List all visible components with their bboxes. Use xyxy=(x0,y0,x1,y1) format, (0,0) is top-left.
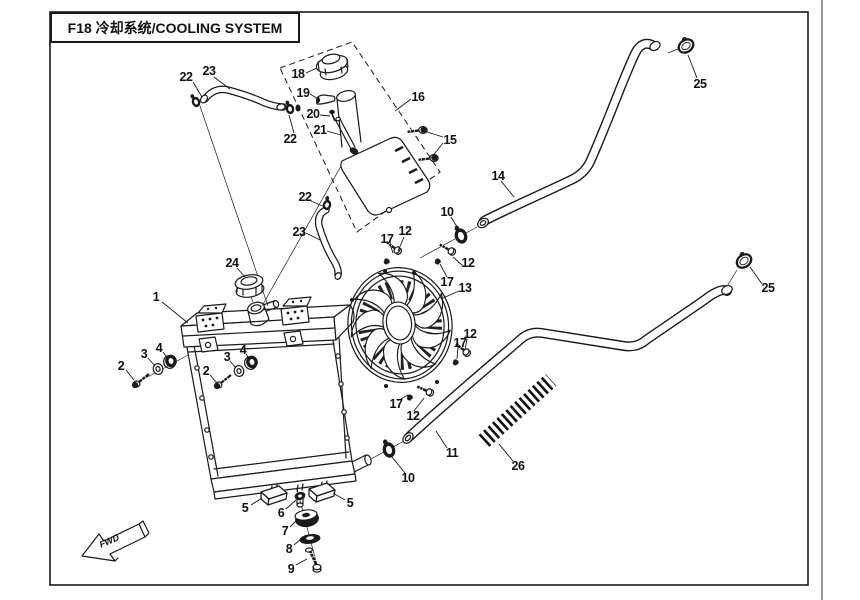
part-callout-8: 8 xyxy=(286,543,292,556)
part-callout-12: 12 xyxy=(399,225,412,238)
part-callout-6: 6 xyxy=(278,507,284,520)
part-callout-9: 9 xyxy=(288,563,294,576)
part-callout-2: 2 xyxy=(118,360,124,373)
part-callout-7: 7 xyxy=(282,525,288,538)
radiator xyxy=(181,297,372,499)
part-callout-17: 17 xyxy=(381,233,394,246)
part-callout-19: 19 xyxy=(297,87,310,100)
part-callout-20: 20 xyxy=(307,108,320,121)
page-title: F18 冷却系统/COOLING SYSTEM xyxy=(68,18,283,38)
bottom-mounts xyxy=(261,483,335,572)
part-callout-17: 17 xyxy=(441,276,454,289)
parts-diagram-page: F18 冷却系统/COOLING SYSTEM 2223181920211615… xyxy=(0,0,860,600)
part-callout-18: 18 xyxy=(292,68,305,81)
part-callout-22: 22 xyxy=(180,71,193,84)
part-callout-4: 4 xyxy=(240,344,246,357)
part-callout-25: 25 xyxy=(694,78,707,91)
part-callout-13: 13 xyxy=(459,282,472,295)
part-callout-17: 17 xyxy=(390,398,403,411)
radiator-cap xyxy=(234,273,265,300)
part-callout-22: 22 xyxy=(299,191,312,204)
part-callout-5: 5 xyxy=(242,502,248,515)
part-callout-14: 14 xyxy=(492,170,505,183)
part-callout-24: 24 xyxy=(226,257,239,270)
part-callout-12: 12 xyxy=(462,257,475,270)
part-callout-3: 3 xyxy=(224,351,230,364)
clamp-10-lower xyxy=(380,437,397,459)
spring-26 xyxy=(484,380,551,441)
part-callout-25: 25 xyxy=(762,282,775,295)
part-callout-12: 12 xyxy=(407,410,420,423)
part-callout-11: 11 xyxy=(446,447,458,460)
part-callout-10: 10 xyxy=(441,206,454,219)
part-callout-17: 17 xyxy=(454,337,467,350)
part-callout-23: 23 xyxy=(293,226,306,239)
part-callout-3: 3 xyxy=(141,348,147,361)
part-callout-22: 22 xyxy=(284,133,297,146)
title-box: F18 冷却系统/COOLING SYSTEM xyxy=(50,12,300,43)
clamp-10-upper xyxy=(452,223,470,245)
diagram-artwork xyxy=(0,0,860,600)
part-callout-5: 5 xyxy=(347,497,353,510)
part-callout-10: 10 xyxy=(402,472,415,485)
part-callout-21: 21 xyxy=(314,124,327,137)
clamp-22-a xyxy=(189,92,202,108)
clamp-22-b xyxy=(284,100,295,115)
clamp-25-upper xyxy=(675,34,696,55)
part-callout-26: 26 xyxy=(512,460,525,473)
part-callout-1: 1 xyxy=(153,291,159,304)
part-callout-4: 4 xyxy=(156,342,162,355)
part-callout-2: 2 xyxy=(203,365,209,378)
part-callout-16: 16 xyxy=(412,91,425,104)
reservoir-tank xyxy=(315,52,439,215)
part-callout-15: 15 xyxy=(444,134,457,147)
part-callout-23: 23 xyxy=(203,65,216,78)
